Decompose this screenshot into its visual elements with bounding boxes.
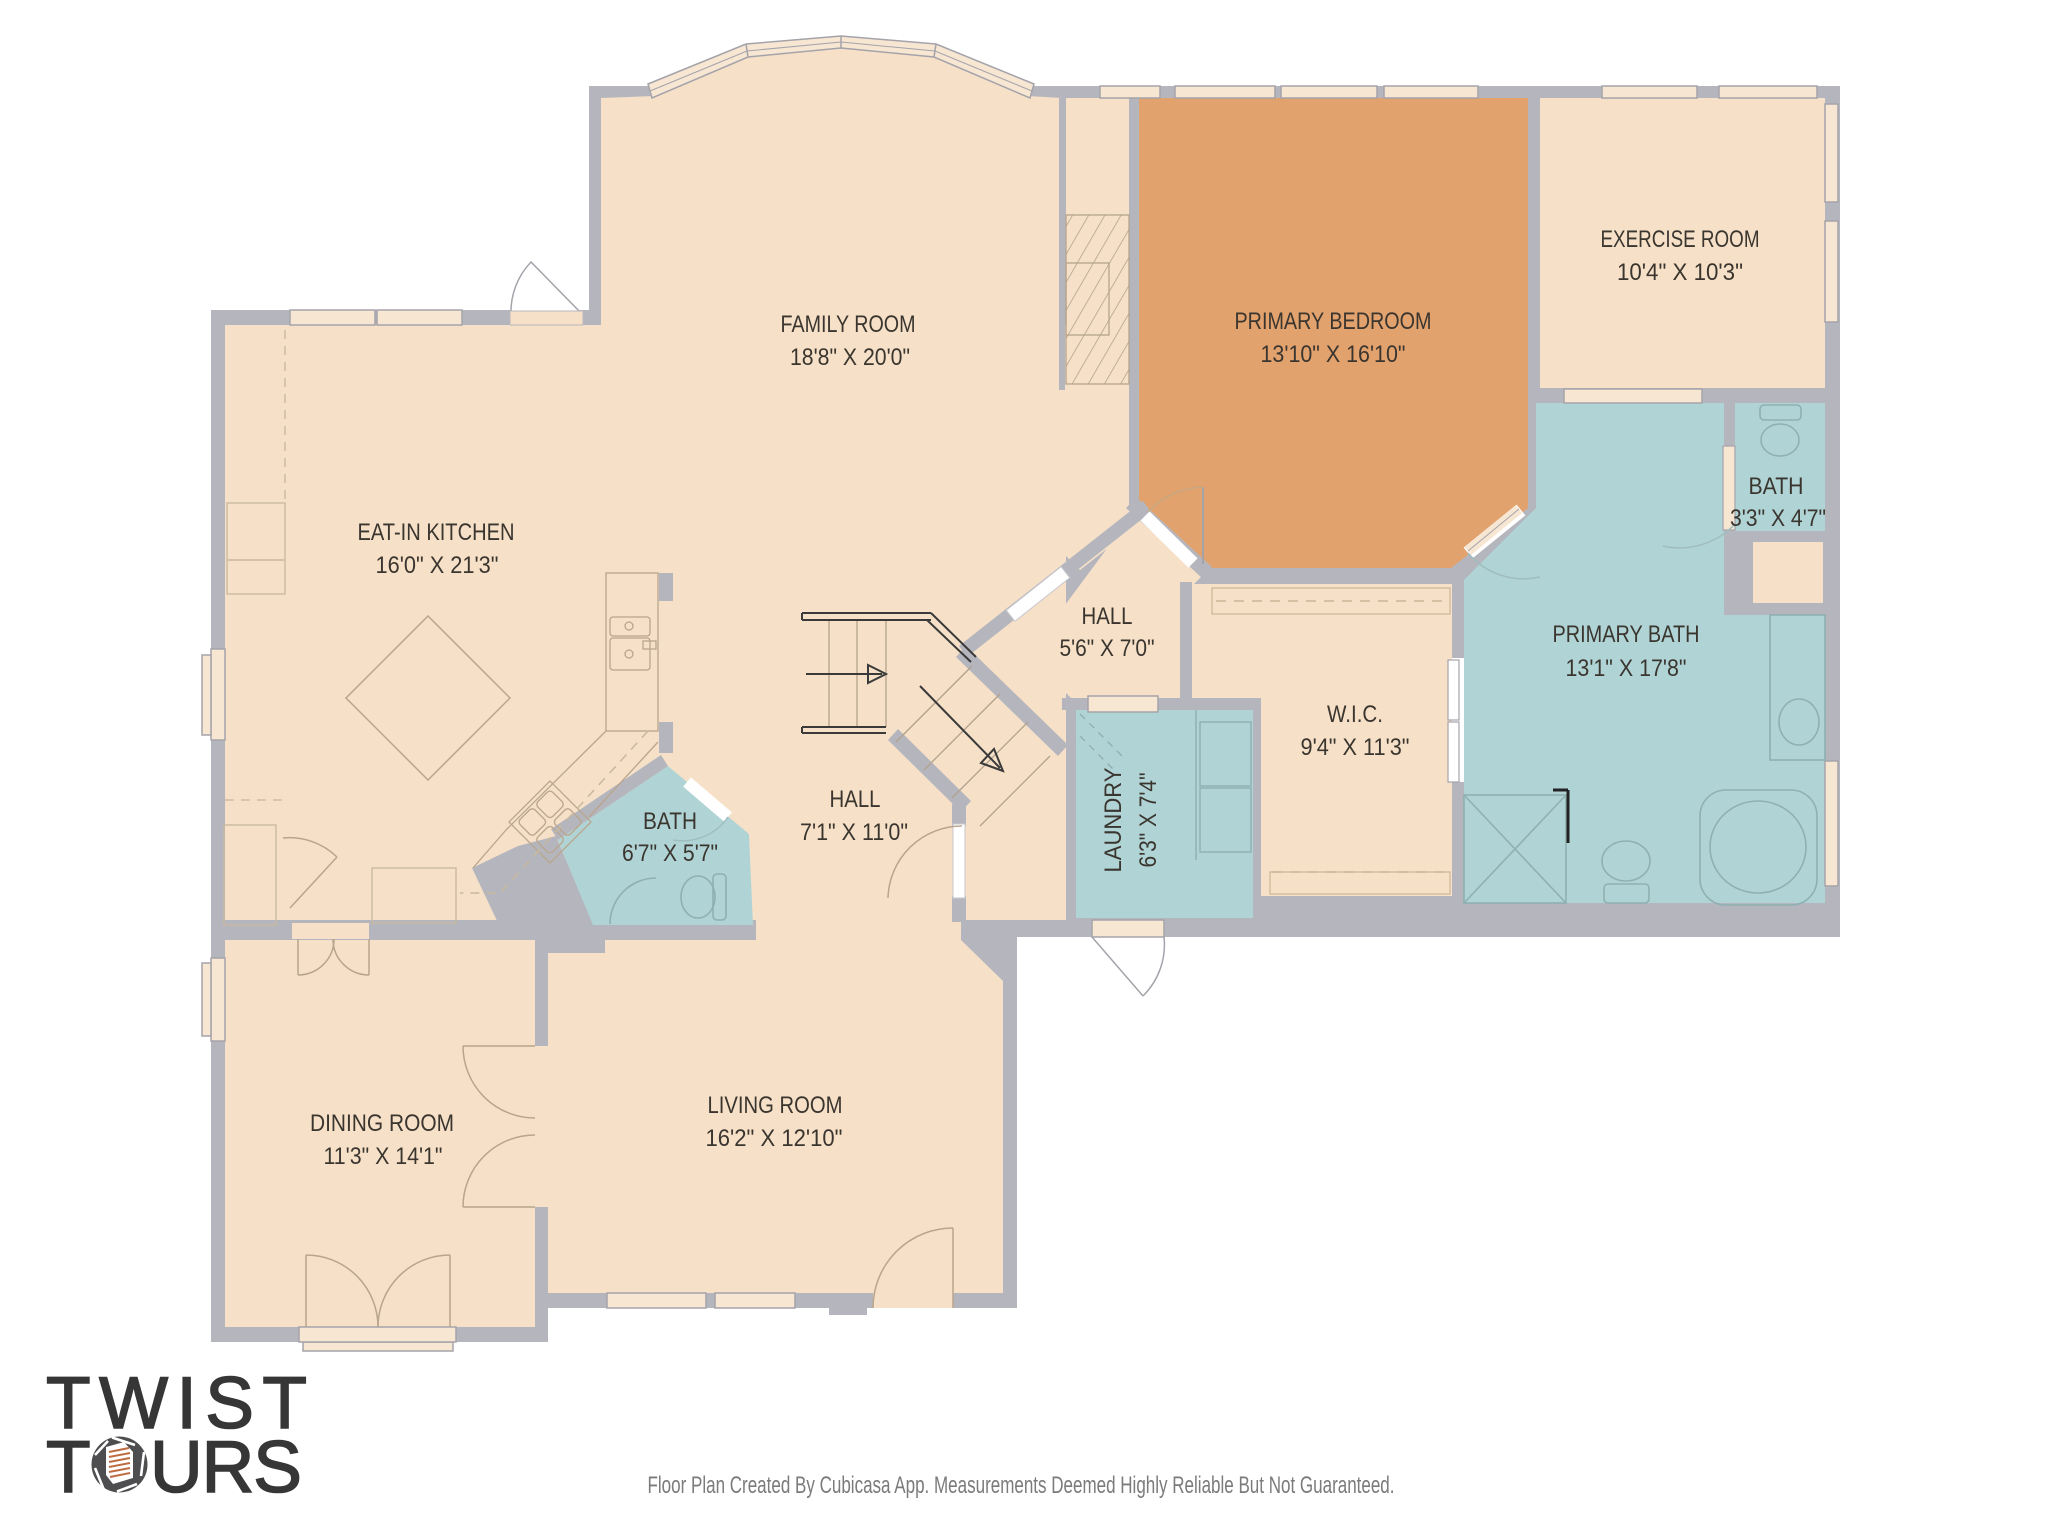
- svg-text:HALL: HALL: [830, 786, 881, 813]
- svg-text:13'1" X 17'8": 13'1" X 17'8": [1566, 655, 1687, 682]
- svg-text:BATH: BATH: [1749, 473, 1804, 500]
- svg-text:9'4" X 11'3": 9'4" X 11'3": [1301, 734, 1410, 761]
- svg-text:HALL: HALL: [1082, 603, 1133, 630]
- svg-text:6'7" X 5'7": 6'7" X 5'7": [622, 840, 718, 867]
- svg-text:Floor Plan Created By Cubicasa: Floor Plan Created By Cubicasa App. Meas…: [648, 1472, 1395, 1499]
- svg-text:16'0" X 21'3": 16'0" X 21'3": [376, 552, 499, 579]
- svg-text:LIVING ROOM: LIVING ROOM: [708, 1092, 843, 1119]
- svg-text:T: T: [46, 1427, 91, 1508]
- svg-text:BATH: BATH: [643, 808, 697, 835]
- svg-text:LAUNDRY: LAUNDRY: [1100, 768, 1127, 873]
- svg-text:W.I.C.: W.I.C.: [1327, 701, 1383, 728]
- svg-text:FAMILY ROOM: FAMILY ROOM: [781, 311, 916, 338]
- svg-text:EXERCISE ROOM: EXERCISE ROOM: [1601, 226, 1760, 253]
- svg-text:5'6" X 7'0": 5'6" X 7'0": [1060, 635, 1155, 662]
- svg-text:13'10" X 16'10": 13'10" X 16'10": [1261, 341, 1406, 368]
- svg-text:PRIMARY BATH: PRIMARY BATH: [1553, 621, 1700, 648]
- svg-text:PRIMARY BEDROOM: PRIMARY BEDROOM: [1235, 308, 1432, 335]
- svg-text:URS: URS: [150, 1427, 302, 1508]
- svg-text:6'3" X 7'4": 6'3" X 7'4": [1135, 773, 1162, 868]
- svg-text:EAT-IN KITCHEN: EAT-IN KITCHEN: [358, 519, 515, 546]
- svg-text:11'3" X 14'1": 11'3" X 14'1": [324, 1143, 443, 1170]
- svg-text:7'1" X 11'0": 7'1" X 11'0": [800, 819, 908, 846]
- svg-text:10'4" X 10'3": 10'4" X 10'3": [1617, 259, 1743, 286]
- svg-text:18'8" X 20'0": 18'8" X 20'0": [790, 344, 910, 371]
- svg-text:DINING ROOM: DINING ROOM: [310, 1110, 454, 1137]
- svg-text:3'3" X 4'7": 3'3" X 4'7": [1730, 505, 1826, 532]
- svg-text:16'2" X 12'10": 16'2" X 12'10": [706, 1125, 843, 1152]
